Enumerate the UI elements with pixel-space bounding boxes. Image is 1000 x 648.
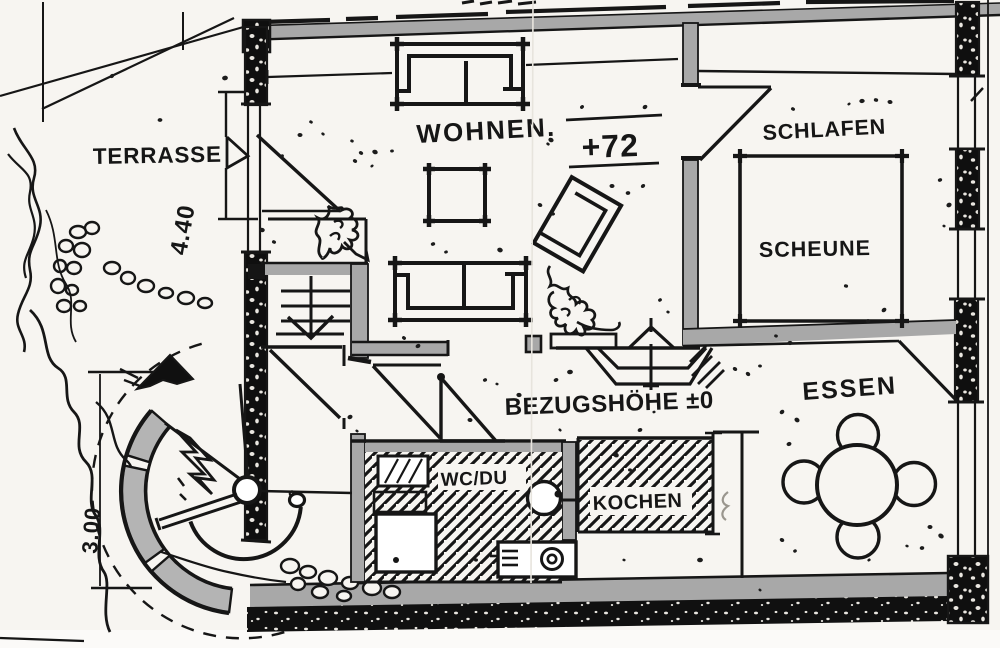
svg-text:KOCHEN: KOCHEN	[592, 490, 682, 515]
svg-text:3.00: 3.00	[77, 506, 105, 554]
svg-text:SCHEUNE: SCHEUNE	[759, 236, 872, 262]
svg-text:TERRASSE: TERRASSE	[93, 142, 222, 169]
svg-text:+72: +72	[581, 127, 640, 165]
svg-text:WC/DU: WC/DU	[440, 468, 508, 491]
